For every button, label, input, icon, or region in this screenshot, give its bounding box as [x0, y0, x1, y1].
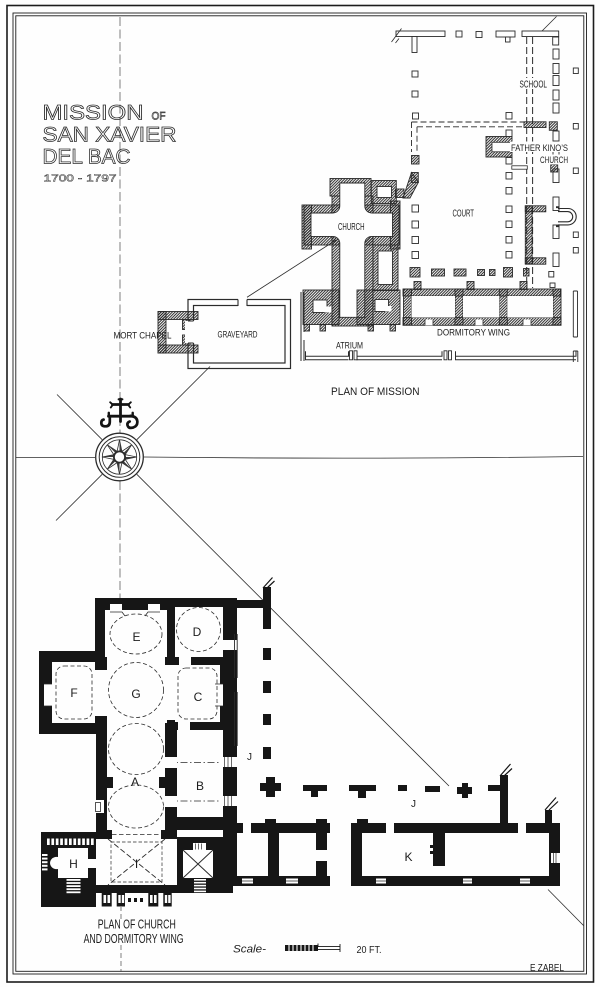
svg-text:A: A: [131, 775, 139, 789]
svg-text:PLAN OF MISSION: PLAN OF MISSION: [331, 386, 420, 398]
svg-text:SAN XAVIER: SAN XAVIER: [43, 123, 177, 147]
svg-text:J: J: [411, 799, 416, 810]
svg-text:OF: OF: [152, 111, 166, 123]
svg-text:E ZABEL: E ZABEL: [530, 963, 564, 974]
svg-text:DORMITORY WING: DORMITORY WING: [437, 328, 510, 338]
svg-text:MORT CHAPEL: MORT CHAPEL: [114, 331, 172, 341]
svg-text:MISSION: MISSION: [43, 101, 144, 125]
svg-text:I: I: [135, 857, 138, 871]
svg-text:CHURCH: CHURCH: [338, 222, 365, 233]
svg-text:J: J: [247, 752, 252, 763]
svg-text:G: G: [131, 687, 140, 701]
svg-text:SCHOOL: SCHOOL: [520, 80, 548, 91]
svg-text:COURT: COURT: [453, 209, 475, 220]
svg-text:F: F: [70, 686, 77, 700]
svg-text:D: D: [193, 625, 202, 639]
svg-text:B: B: [196, 779, 204, 793]
svg-text:ATRIUM: ATRIUM: [336, 341, 363, 351]
svg-text:20 FT.: 20 FT.: [357, 945, 382, 956]
svg-text:Scale-: Scale-: [233, 944, 266, 956]
svg-text:C: C: [194, 690, 203, 704]
svg-text:K: K: [404, 850, 412, 864]
svg-text:AND DORMITORY WING: AND DORMITORY WING: [84, 932, 184, 946]
svg-text:E: E: [132, 630, 140, 644]
svg-text:1700 - 1797: 1700 - 1797: [44, 173, 117, 185]
svg-text:DEL BAC: DEL BAC: [43, 145, 131, 169]
svg-text:H: H: [69, 857, 78, 871]
svg-text:CHURCH: CHURCH: [540, 155, 568, 165]
svg-text:GRAVEYARD: GRAVEYARD: [218, 330, 258, 340]
svg-text:FATHER KINO’S: FATHER KINO’S: [511, 143, 568, 153]
svg-text:PLAN OF CHURCH: PLAN OF CHURCH: [98, 918, 176, 932]
